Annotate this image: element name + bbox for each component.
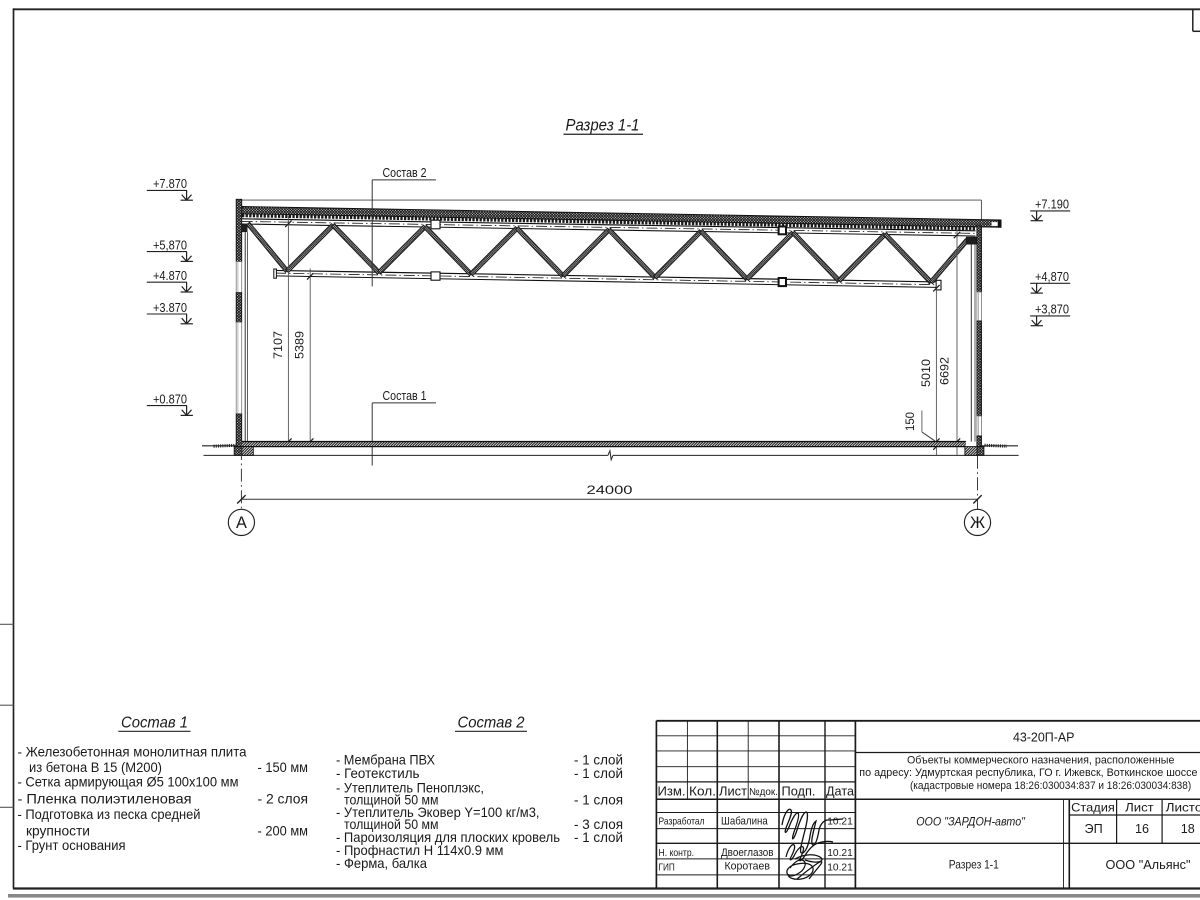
svg-text:Ж: Ж (970, 514, 985, 532)
svg-text:+3,870: +3,870 (1035, 303, 1069, 317)
svg-text:по адресу: Удмуртская республи: по адресу: Удмуртская республика, ГО г. … (859, 767, 1197, 779)
svg-text:+4,870: +4,870 (1035, 270, 1069, 284)
svg-text:10.21: 10.21 (827, 848, 853, 859)
svg-text:Разрез 1-1: Разрез 1-1 (949, 858, 999, 871)
svg-text:ООО "Альянс": ООО "Альянс" (1106, 857, 1191, 872)
svg-text:6692: 6692 (937, 357, 951, 385)
svg-text:из бетона В 15 (М200): из бетона В 15 (М200) (29, 760, 162, 775)
svg-text:- Мембрана ПВХ: - Мембрана ПВХ (336, 752, 435, 767)
svg-text:- Ферма, балка: - Ферма, балка (336, 856, 427, 871)
svg-text:ЭП: ЭП (1085, 822, 1103, 836)
svg-text:5010: 5010 (919, 359, 933, 387)
svg-text:- 150 мм: - 150 мм (258, 760, 309, 775)
svg-text:- 200 мм: - 200 мм (258, 824, 309, 839)
svg-text:+0.870: +0.870 (153, 392, 187, 406)
svg-text:Двоеглазов: Двоеглазов (721, 847, 774, 859)
svg-text:крупности: крупности (26, 824, 90, 839)
svg-text:Кол.: Кол. (689, 783, 716, 798)
svg-text:+3.870: +3.870 (153, 301, 187, 315)
svg-text:(кадастровые номера 18:26:0300: (кадастровые номера 18:26:030034:837 и 1… (910, 780, 1191, 792)
svg-text:16: 16 (1135, 822, 1149, 836)
svg-text:- 1 слой: - 1 слой (574, 766, 623, 781)
svg-text:Объекты коммерческого назначен: Объекты коммерческого назначения, распол… (907, 754, 1175, 766)
svg-text:Стадия: Стадия (1071, 801, 1115, 815)
svg-text:+4.870: +4.870 (153, 269, 187, 283)
svg-text:- Пленка полиэтиленовая: - Пленка полиэтиленовая (18, 792, 192, 807)
svg-text:- Грунт основания: - Грунт основания (18, 838, 126, 853)
svg-text:10.21: 10.21 (827, 817, 853, 828)
svg-text:24000: 24000 (587, 483, 633, 497)
svg-text:Лист: Лист (1125, 801, 1154, 815)
svg-text:- Подготовка из песка средней: - Подготовка из песка средней (18, 807, 201, 822)
svg-text:18: 18 (1181, 822, 1195, 836)
svg-text:- 1 слой: - 1 слой (574, 830, 623, 845)
svg-text:5389: 5389 (293, 331, 307, 359)
svg-text:- Железобетонная монолитная п: - Железобетонная монолитная плита (18, 744, 247, 759)
svg-text:+7.870: +7.870 (153, 177, 187, 191)
svg-text:Шабалина: Шабалина (721, 816, 768, 828)
svg-text:№док.: №док. (749, 787, 778, 798)
svg-text:Состав 1: Состав 1 (383, 388, 427, 403)
svg-text:- Сетка армирующая Ø5 100x100: - Сетка армирующая Ø5 100x100 мм (18, 775, 239, 790)
svg-text:Подп.: Подп. (782, 783, 816, 798)
svg-text:Разработал: Разработал (659, 816, 705, 828)
svg-text:Н. контр.: Н. контр. (659, 848, 695, 859)
svg-text:- 1 слоя: - 1 слоя (574, 793, 623, 808)
svg-text:150: 150 (903, 412, 917, 431)
svg-text:Дата: Дата (826, 783, 855, 798)
svg-text:Состав 2: Состав 2 (383, 165, 427, 180)
svg-text:ГИП: ГИП (659, 863, 675, 874)
svg-text:Изм.: Изм. (658, 783, 686, 798)
svg-text:- Геотекстиль: - Геотекстиль (336, 766, 420, 781)
svg-text:Состав 1: Состав 1 (121, 715, 188, 732)
svg-text:ООО "ЗАРДОН-авто": ООО "ЗАРДОН-авто" (916, 814, 1025, 828)
svg-text:Лист: Лист (719, 783, 747, 798)
svg-text:Коротаев: Коротаев (725, 861, 771, 873)
svg-text:43-20П-АР: 43-20П-АР (1013, 731, 1075, 745)
svg-text:Листов: Листов (1166, 801, 1200, 815)
svg-text:+5,870: +5,870 (153, 238, 187, 252)
svg-text:7107: 7107 (271, 331, 285, 359)
svg-text:Разрез 1-1: Разрез 1-1 (566, 117, 640, 135)
svg-text:- 1 слой: - 1 слой (574, 752, 623, 767)
svg-text:А: А (236, 514, 247, 532)
svg-text:+7.190: +7.190 (1035, 198, 1069, 212)
svg-text:10.21: 10.21 (827, 863, 853, 874)
svg-text:Состав 2: Состав 2 (458, 715, 525, 732)
svg-text:- 2 слоя: - 2 слоя (258, 792, 309, 807)
